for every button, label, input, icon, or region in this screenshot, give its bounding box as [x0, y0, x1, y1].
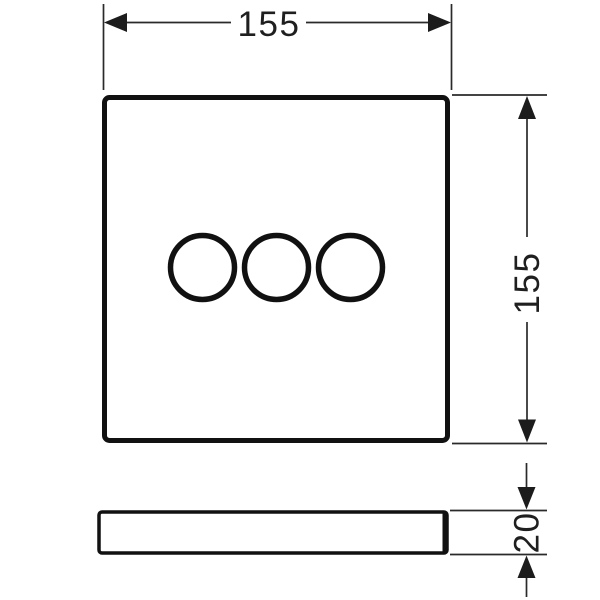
- height-dimension-label: 155: [508, 252, 547, 315]
- arrowhead-up-icon: [518, 556, 536, 579]
- arrowhead-up-icon: [518, 96, 536, 119]
- arrowhead-down-icon: [518, 487, 536, 510]
- arrowhead-right-icon: [428, 13, 451, 32]
- technical-drawing: 155 155 20: [0, 0, 600, 600]
- side-profile-outline: [99, 512, 447, 553]
- thickness-dimension: 20: [450, 463, 547, 597]
- technical-drawing-page: 155 155 20: [0, 0, 600, 600]
- height-dimension: 155: [452, 95, 547, 444]
- control-circle-2: [245, 236, 309, 300]
- width-dimension: 155: [104, 4, 452, 90]
- control-circle-1: [171, 236, 235, 300]
- arrowhead-left-icon: [104, 13, 127, 32]
- thickness-dimension-label: 20: [508, 512, 547, 554]
- control-circle-3: [319, 236, 383, 300]
- side-view: [99, 512, 447, 553]
- front-view: [105, 98, 448, 441]
- arrowhead-down-icon: [518, 420, 536, 443]
- width-dimension-label: 155: [238, 5, 301, 44]
